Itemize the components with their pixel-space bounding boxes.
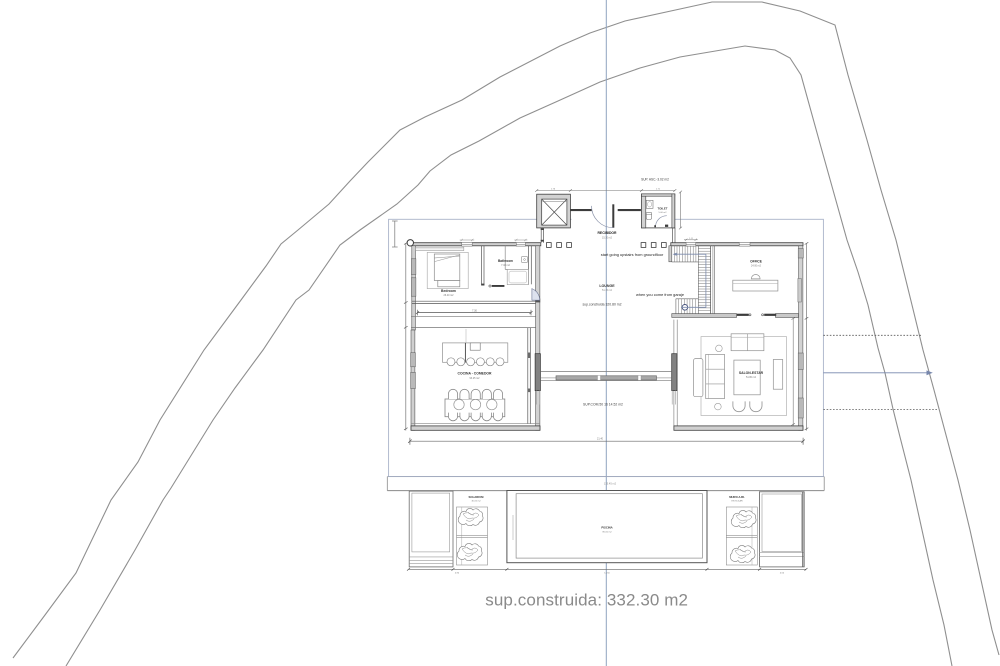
svg-text:SUP.COM.50 16 14.52 m2: SUP.COM.50 16 14.52 m2 bbox=[583, 402, 623, 406]
svg-text:51.80 m2: 51.80 m2 bbox=[746, 376, 757, 379]
svg-text:7.30: 7.30 bbox=[472, 309, 477, 312]
svg-text:sup.construida 320.80 m2: sup.construida 320.80 m2 bbox=[582, 303, 621, 307]
svg-text:SALON-ESTAR: SALON-ESTAR bbox=[739, 371, 764, 375]
svg-text:COCINA - COMEDOR: COCINA - COMEDOR bbox=[458, 372, 493, 376]
svg-text:5.00 m2: 5.00 m2 bbox=[659, 212, 668, 214]
svg-text:PISCINA: PISCINA bbox=[601, 526, 612, 530]
svg-text:26.40 m2: 26.40 m2 bbox=[444, 294, 455, 297]
svg-text:21.40: 21.40 bbox=[597, 438, 604, 441]
svg-text:7.40 m2: 7.40 m2 bbox=[501, 264, 510, 267]
svg-text:Bathroom: Bathroom bbox=[498, 259, 513, 263]
svg-text:30.05 m2: 30.05 m2 bbox=[471, 500, 481, 502]
svg-text:85.00 m2: 85.00 m2 bbox=[602, 531, 612, 533]
svg-text:EN SOLAR: EN SOLAR bbox=[731, 499, 742, 502]
svg-text:51.45 m2: 51.45 m2 bbox=[602, 289, 613, 292]
svg-text:14.50: 14.50 bbox=[604, 573, 610, 575]
svg-text:93.25 m2: 93.25 m2 bbox=[470, 377, 481, 380]
svg-text:15.20 m2: 15.20 m2 bbox=[602, 236, 613, 239]
svg-text:Bedroom: Bedroom bbox=[441, 289, 456, 293]
svg-text:24.00 m2: 24.00 m2 bbox=[751, 265, 762, 268]
svg-text:RECIBIDOR: RECIBIDOR bbox=[597, 231, 617, 235]
svg-text:MURO AJD.: MURO AJD. bbox=[729, 495, 745, 499]
svg-text:start going upstairs from grou: start going upstairs from groundfloor bbox=[601, 252, 664, 257]
svg-text:OFFICE: OFFICE bbox=[750, 260, 762, 264]
svg-text:135.45 m2: 135.45 m2 bbox=[604, 482, 617, 486]
svg-text:LOUNGE: LOUNGE bbox=[599, 284, 615, 288]
svg-text:TOILET: TOILET bbox=[658, 207, 668, 211]
svg-text:sup.construida: 332.30 m2: sup.construida: 332.30 m2 bbox=[485, 590, 688, 609]
svg-text:SUP. ASC.-3.02 m2: SUP. ASC.-3.02 m2 bbox=[641, 177, 669, 181]
svg-text:when you come from garaje: when you come from garaje bbox=[636, 292, 684, 297]
svg-text:SOLARIUM: SOLARIUM bbox=[469, 495, 485, 499]
